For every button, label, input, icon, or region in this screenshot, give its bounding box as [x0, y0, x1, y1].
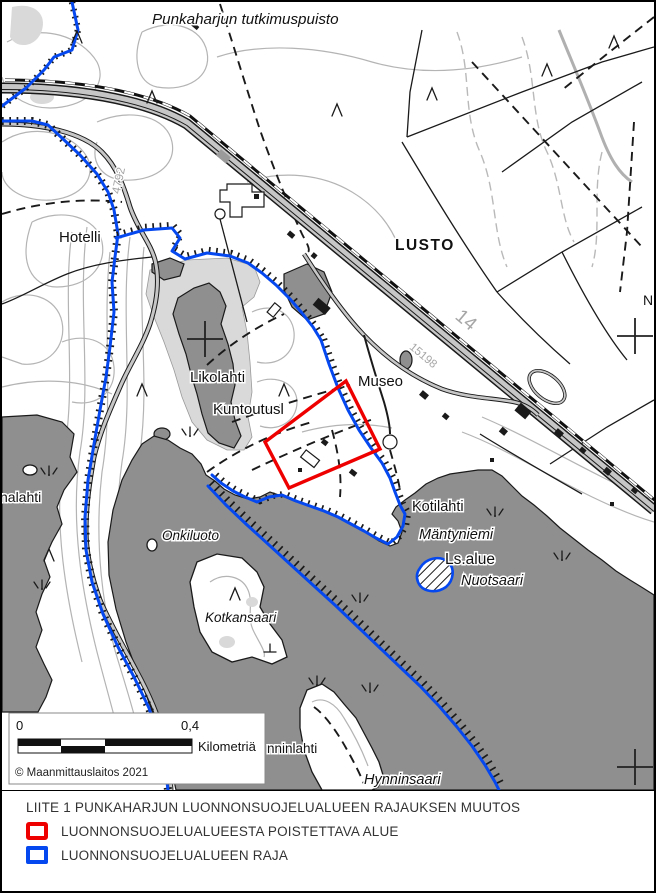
- legend-title: LIITE 1 PUNKAHARJUN LUONNONSUOJELUALUEEN…: [26, 800, 654, 815]
- label-kotilahti: Kotilahti: [412, 499, 464, 515]
- reserve-boundary-key-icon: [26, 846, 48, 864]
- label-museo: Museo: [358, 373, 403, 390]
- label-nalahti-partial: nalahti: [2, 489, 41, 505]
- scale-start: 0: [16, 718, 23, 733]
- label-likolahti: Likolahti: [190, 369, 245, 386]
- label-hynninsaari: Hynninsaari: [364, 772, 441, 788]
- label-tutkimuspuisto: Punkaharjun tutkimuspuisto: [152, 11, 339, 28]
- label-onkiluoto: Onkiluoto: [162, 528, 220, 543]
- map-canvas: Punkaharjun tutkimuspuisto Hotelli LUSTO…: [2, 2, 654, 790]
- scale-bar: [18, 739, 192, 753]
- legend-item-label: LUONNONSUOJELUALUEESTA POISTETTAVA ALUE: [61, 824, 399, 839]
- legend-item-label: LUONNONSUOJELUALUEEN RAJA: [61, 848, 288, 863]
- label-nninlahti-partial: nninlahti: [267, 741, 317, 756]
- label-hotelli: Hotelli: [59, 229, 101, 246]
- trig-point: [215, 209, 225, 219]
- label-kuntoutusl: Kuntoutusl: [213, 401, 284, 418]
- scale-bar-box: 0 0,4 Kilometriä © Maanmittauslaitos 202…: [9, 713, 265, 784]
- label-n-partial: N: [643, 292, 653, 308]
- label-ls-alue: Ls.alue: [445, 551, 495, 568]
- topographic-map: Punkaharjun tutkimuspuisto Hotelli LUSTO…: [2, 2, 654, 790]
- scale-end: 0,4: [181, 718, 199, 733]
- label-nuotsaari: Nuotsaari: [461, 573, 524, 589]
- legend-item-removal: LUONNONSUOJELUALUEESTA POISTETTAVA ALUE: [26, 822, 654, 840]
- label-lusto: LUSTO: [395, 237, 455, 254]
- map-sheet: Punkaharjun tutkimuspuisto Hotelli LUSTO…: [0, 0, 656, 893]
- copyright: © Maanmittauslaitos 2021: [15, 767, 148, 779]
- legend: LIITE 1 PUNKAHARJUN LUONNONSUOJELUALUEEN…: [2, 790, 654, 891]
- removal-area-key-icon: [26, 822, 48, 840]
- parking-loop: [383, 435, 397, 449]
- label-kotkansaari: Kotkansaari: [205, 610, 277, 625]
- label-mantyniemi: Mäntyniemi: [419, 527, 494, 543]
- legend-item-boundary: LUONNONSUOJELUALUEEN RAJA: [26, 846, 654, 864]
- scale-unit: Kilometriä: [198, 739, 257, 754]
